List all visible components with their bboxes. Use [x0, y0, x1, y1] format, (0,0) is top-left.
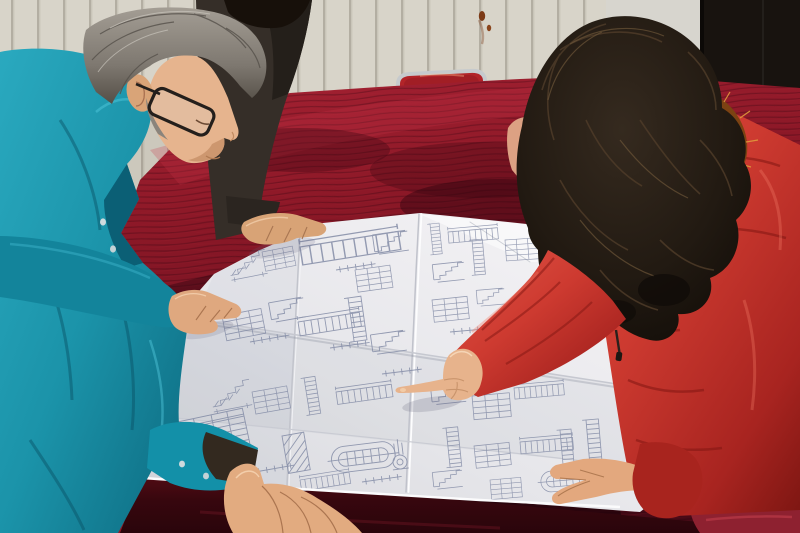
snap-button — [179, 461, 185, 468]
photo-scene — [0, 0, 800, 533]
snap-button — [110, 245, 116, 252]
fingernail — [400, 388, 406, 392]
snap-button — [203, 473, 209, 480]
snap-button — [100, 218, 106, 225]
scene-canvas — [0, 0, 800, 533]
